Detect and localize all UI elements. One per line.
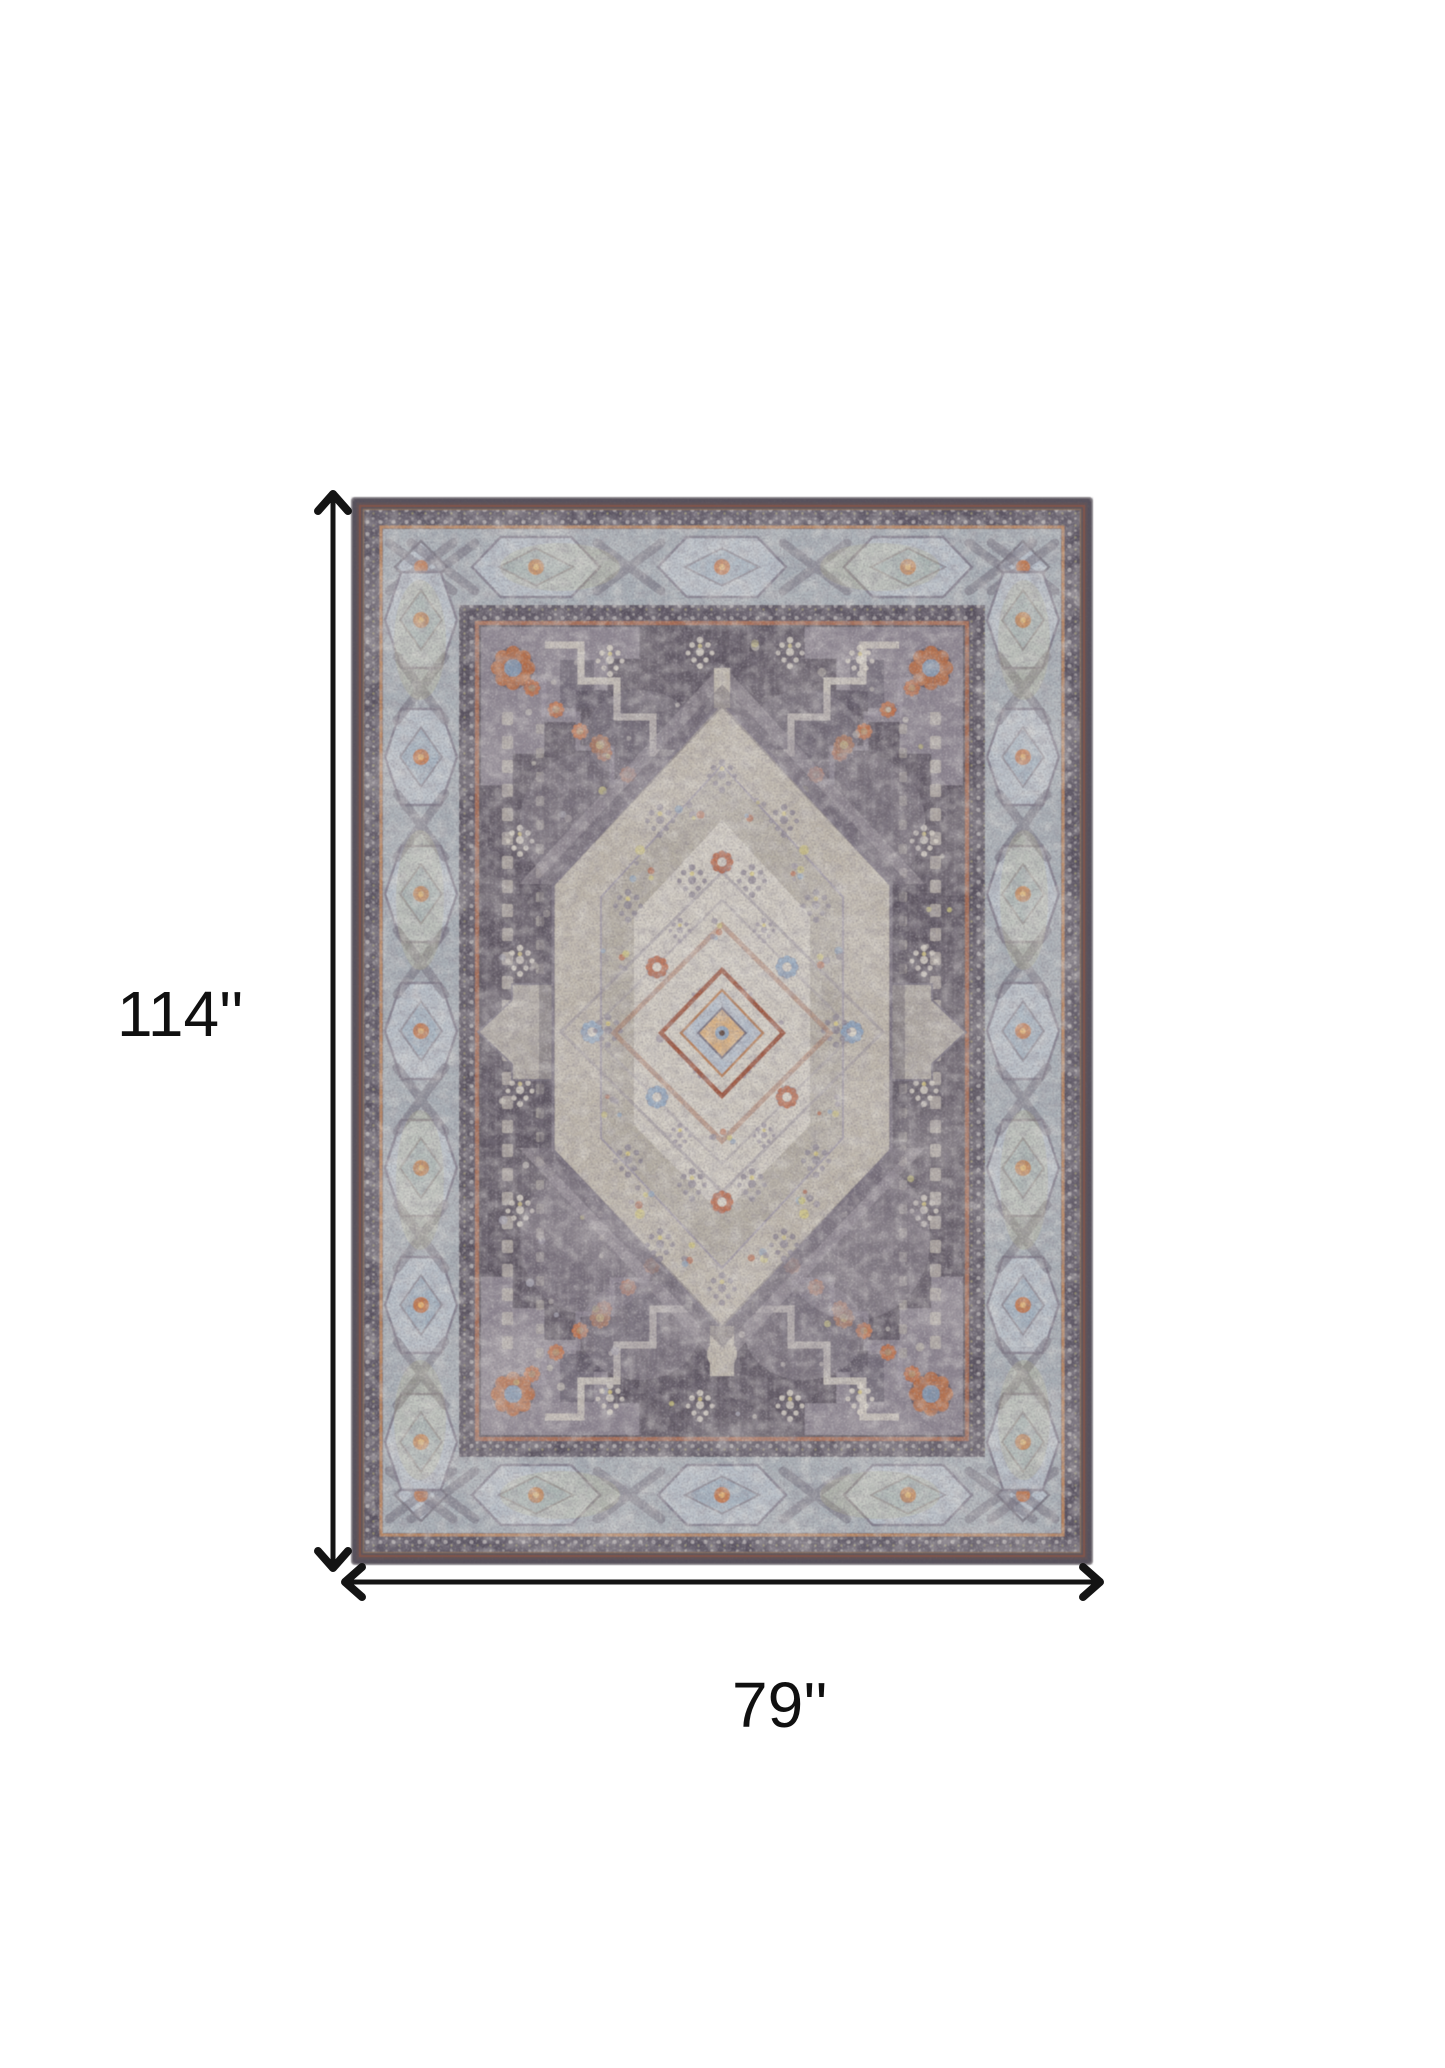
svg-text:79'': 79'' xyxy=(732,1669,828,1741)
svg-text:114'': 114'' xyxy=(117,978,243,1050)
